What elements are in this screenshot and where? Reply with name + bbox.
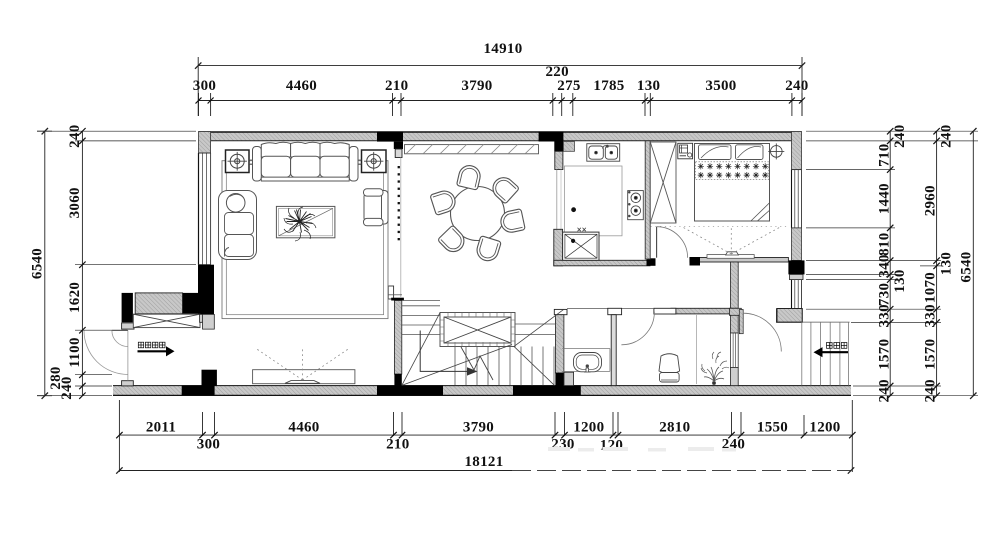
svg-text:6540: 6540 <box>959 251 975 282</box>
svg-text:2011: 2011 <box>146 420 176 436</box>
svg-text:120: 120 <box>600 438 623 454</box>
svg-text:130: 130 <box>892 269 908 292</box>
svg-text:1550: 1550 <box>757 420 788 436</box>
svg-text:275: 275 <box>557 78 580 94</box>
svg-text:1620: 1620 <box>67 282 83 313</box>
svg-text:3500: 3500 <box>705 78 736 94</box>
svg-text:2810: 2810 <box>659 420 690 436</box>
svg-text:330: 330 <box>877 304 893 327</box>
svg-text:1440: 1440 <box>877 183 893 214</box>
svg-text:1570: 1570 <box>877 339 893 370</box>
svg-text:810: 810 <box>877 232 893 255</box>
svg-text:1785: 1785 <box>593 78 624 94</box>
svg-text:1200: 1200 <box>573 420 604 436</box>
svg-text:6540: 6540 <box>30 248 46 279</box>
svg-text:240: 240 <box>877 379 893 402</box>
svg-text:130: 130 <box>637 78 660 94</box>
svg-text:710: 710 <box>877 143 893 166</box>
svg-text:3060: 3060 <box>67 187 83 218</box>
svg-text:2960: 2960 <box>923 185 939 216</box>
svg-text:240: 240 <box>939 124 955 147</box>
svg-text:4460: 4460 <box>286 78 317 94</box>
svg-text:330: 330 <box>923 304 939 327</box>
svg-text:240: 240 <box>923 379 939 402</box>
svg-text:18121: 18121 <box>465 454 504 470</box>
svg-text:730: 730 <box>877 283 893 306</box>
svg-text:240: 240 <box>59 376 75 399</box>
svg-text:240: 240 <box>785 78 808 94</box>
svg-text:1200: 1200 <box>809 420 840 436</box>
svg-text:3790: 3790 <box>461 78 492 94</box>
svg-text:210: 210 <box>385 78 408 94</box>
svg-text:240: 240 <box>67 124 83 147</box>
svg-text:240: 240 <box>892 124 908 147</box>
svg-text:130: 130 <box>939 252 955 275</box>
svg-text:340: 340 <box>877 254 893 277</box>
svg-text:4460: 4460 <box>288 420 319 436</box>
svg-text:1070: 1070 <box>923 272 939 303</box>
svg-text:300: 300 <box>193 78 216 94</box>
svg-text:210: 210 <box>386 437 409 453</box>
svg-text:1100: 1100 <box>67 337 83 367</box>
svg-text:1570: 1570 <box>923 339 939 370</box>
svg-text:14910: 14910 <box>484 41 523 57</box>
svg-text:3790: 3790 <box>463 420 494 436</box>
svg-text:300: 300 <box>197 437 220 453</box>
